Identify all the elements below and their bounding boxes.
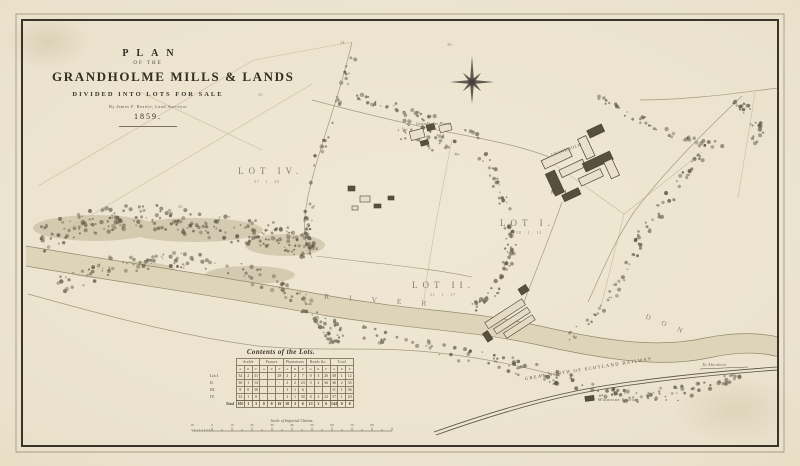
- svg-text:70: 70: [350, 423, 354, 427]
- svg-text:10: 10: [190, 423, 194, 427]
- lots-table: ArablePasturePlantationsRoads &c.TotalAR…: [208, 358, 354, 408]
- svg-text:10: 10: [230, 423, 234, 427]
- compass-rose-icon: [450, 56, 494, 104]
- field-number: 20 ·: [178, 204, 185, 209]
- svg-text:60: 60: [330, 423, 334, 427]
- contents-of-lots: Contents of the Lots. ArablePasturePlant…: [206, 348, 356, 408]
- map-year: 1859.: [52, 112, 244, 121]
- svg-text:80: 80: [370, 423, 374, 427]
- to-aberdeen-label: To Aberdeen: [702, 362, 726, 367]
- scale-bar: 1001020304050607080: [190, 423, 392, 431]
- svg-text:50: 50: [310, 423, 314, 427]
- woodside-station-label: Woodside Station: [598, 397, 639, 402]
- lot-i-label: LOT I.: [500, 218, 555, 228]
- lot-ii-label: LOT II.: [412, 280, 475, 290]
- title-block: PLAN OF THE GRANDHOLME MILLS & LANDS DIV…: [52, 48, 244, 127]
- lot-iv-area: 37 . 1 . 20: [254, 180, 280, 184]
- svg-text:20: 20: [250, 423, 254, 427]
- grandholm-place-label: Grandholm Place: [416, 121, 450, 126]
- map-sheet: 1001020304050607080 PLAN OF THE GRANDHOL…: [0, 0, 800, 466]
- svg-text:40: 40: [290, 423, 294, 427]
- field-number: 52 ·: [258, 92, 265, 97]
- lot-ii-area: 31 . 1 . 17: [430, 293, 456, 297]
- scale-caption: Scale of Imperial Chains.: [212, 418, 372, 423]
- field-number: 34 ·: [340, 40, 347, 45]
- station-building: [585, 395, 595, 401]
- svg-text:0: 0: [211, 423, 213, 427]
- surveyor-credit: By James F. Beattie, Land Surveyor: [52, 104, 244, 109]
- map-title-sub: DIVIDED INTO LOTS FOR SALE: [52, 91, 244, 98]
- lot-i-area: 38 . 1 . 12: [516, 231, 542, 235]
- title-rule: [119, 126, 177, 127]
- map-title-ofthe: OF THE: [52, 61, 244, 66]
- field-number: 26 ·: [447, 42, 454, 47]
- farm-buildings: [348, 186, 394, 210]
- map-title-plan: PLAN: [52, 48, 244, 59]
- lot-iv-label: LOT IV.: [238, 166, 303, 176]
- mills-label: MILLS: [551, 190, 584, 196]
- map-title-main: GRANDHOLME MILLS & LANDS: [52, 69, 244, 85]
- table-title: Contents of the Lots.: [206, 348, 356, 356]
- svg-text:30: 30: [270, 423, 274, 427]
